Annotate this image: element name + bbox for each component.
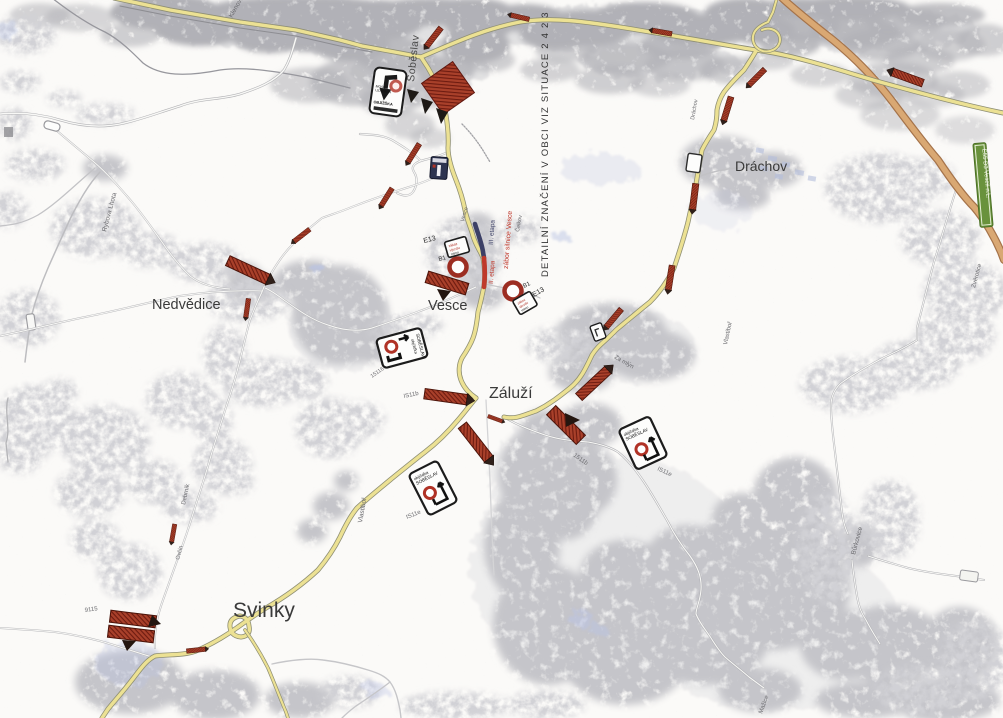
svg-text:Záluží: Záluží [489, 385, 533, 402]
svg-text:Nedvědice: Nedvědice [152, 297, 221, 313]
svg-text:Svinky: Svinky [233, 599, 295, 622]
svg-text:Vesce: Vesce [428, 298, 468, 314]
svg-text:Dráchov: Dráchov [735, 158, 787, 174]
svg-text:DETAILNÍ ZNAČENÍ V OBCI VI: DETAILNÍ ZNAČENÍ V OBCI VIZ SITUACE 2 4 … [540, 11, 551, 277]
